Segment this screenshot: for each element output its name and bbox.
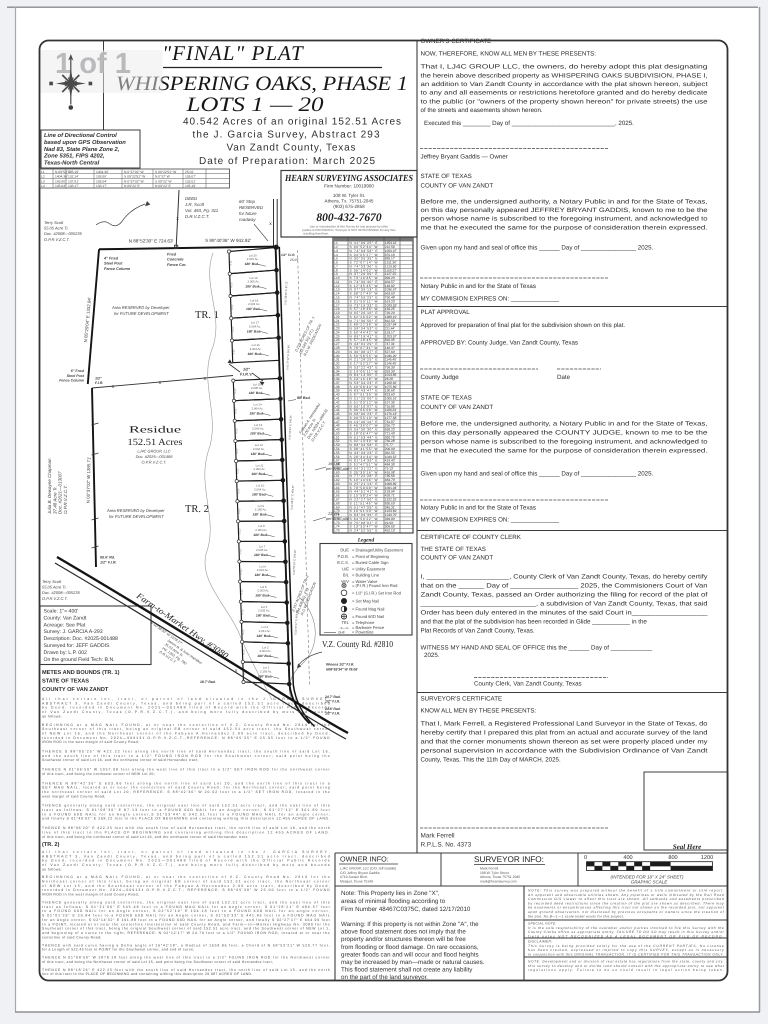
svg-text:Doc. #2021—013007: Doc. #2021—013007 [58, 471, 63, 514]
svg-text:for FUTURE DEVELOPMENT: for FUTURE DEVELOPMENT [114, 311, 169, 316]
svg-text:55.05 Acre Tr.: 55.05 Acre Tr. [44, 226, 69, 231]
svg-text:132.01': 132.01' [185, 179, 196, 183]
svg-text:1/2": 1/2" [95, 377, 102, 381]
svg-text:(TR. 2): (TR. 2) [42, 841, 60, 848]
svg-text:2.004 Ac.: 2.004 Ac. [257, 568, 269, 572]
svg-text:180' Bsd.: 180' Bsd. [257, 634, 271, 638]
svg-text:180' Bsd.: 180' Bsd. [247, 329, 261, 333]
svg-text:N 01°: N 01° [230, 282, 233, 288]
svg-text:1200: 1200 [701, 855, 713, 861]
svg-text:1 of 1: 1 of 1 [55, 48, 131, 80]
svg-text:an addition to Van Zandt Count: an addition to Van Zandt County in accor… [421, 81, 708, 88]
svg-text:Fence Column: Fence Column [104, 267, 131, 271]
svg-text:Concrete: Concrete [167, 258, 183, 262]
svg-text:Before me, the undersigned aut: Before me, the undersigned authority, a … [421, 199, 708, 206]
svg-text:COUNTY OF VAN ZANDT: COUNTY OF VAN ZANDT [421, 555, 494, 562]
svg-text:TEL: TEL [341, 620, 349, 625]
svg-text:for future: for future [239, 211, 257, 216]
svg-text:452.13': 452.13' [385, 529, 396, 533]
svg-text:of this tract, and being the n: of this tract, and being the northeast c… [42, 835, 249, 839]
svg-text:= (F.I.R.) Found Iron Rod: = (F.I.R.) Found Iron Rod [352, 583, 398, 588]
svg-text:TR. 2: TR. 2 [185, 504, 209, 515]
svg-text:as follows:: as follows: [42, 714, 62, 718]
svg-text:183.80': 183.80' [96, 175, 107, 179]
svg-text:Before me, the undersigned aut: Before me, the undersigned authority, a … [421, 421, 708, 428]
svg-text:S 89°22'51" W: S 89°22'51" W [155, 170, 177, 174]
svg-text:me that he executed the same f: me that he executed the same for the pur… [421, 224, 708, 231]
svg-text:SURVEYOR INFO:: SURVEYOR INFO: [474, 855, 544, 864]
svg-text:personal supervision in accord: personal supervision in accordance with … [421, 748, 708, 755]
svg-text:IRON ROD in the west margin of: IRON ROD in the west margin of said Coun… [42, 893, 139, 897]
svg-text:180' Bsd.: 180' Bsd. [250, 432, 264, 436]
svg-text:DUE: DUE [340, 548, 349, 553]
svg-text:N 01°: N 01° [239, 528, 242, 534]
svg-text:2.004 Ac.: 2.004 Ac. [255, 528, 267, 532]
svg-text:STATE OF TEXAS: STATE OF TEXAS [42, 679, 89, 685]
svg-text:= Set Mag Nail: = Set Mag Nail [352, 599, 379, 604]
svg-text:N 00°37'02" W 1385.71': N 00°37'02" W 1385.71' [86, 457, 92, 504]
svg-text:line of this tract to the PLAC: line of this tract to the PLACE OF BEGIN… [42, 972, 253, 976]
svg-text:2.031 Ac.: 2.031 Ac. [247, 257, 259, 261]
svg-text:to the public (or "owners of t: to the public (or "owners of the propert… [421, 98, 709, 105]
svg-text:= Point of Beginning: = Point of Beginning [352, 554, 389, 559]
svg-text:2.159 Ac.: 2.159 Ac. [260, 669, 272, 673]
svg-text:P.O.B.: P.O.B. [337, 554, 349, 559]
svg-text:Mark Ferrell: Mark Ferrell [421, 833, 455, 840]
svg-text:180' Bsd.: 180' Bsd. [245, 285, 259, 289]
svg-text:above flood statement does: above flood statement does not imply tha… [341, 929, 466, 936]
svg-text:N 01°: N 01° [239, 548, 242, 554]
svg-text:2.004 Ac.: 2.004 Ac. [249, 324, 261, 328]
svg-text:1/2" F.I.R.: 1/2" F.I.R. [325, 700, 340, 704]
svg-text:METES AND BOUNDS (TR. 1): METES AND BOUNDS (TR. 1) [42, 669, 120, 676]
svg-text:S 89°22'51" W: S 89°22'51" W [124, 175, 146, 179]
svg-text:180' Bsd.: 180' Bsd. [247, 352, 261, 356]
svg-text:800: 800 [668, 855, 677, 861]
svg-text:180' Bsd.: 180' Bsd. [249, 411, 263, 415]
svg-text:0: 0 [584, 855, 587, 861]
svg-text:That I, Mark Ferrell, a Regist: That I, Mark Ferrell, a Registered Profe… [421, 721, 709, 728]
svg-text:180' Bsd.: 180' Bsd. [253, 533, 267, 537]
svg-text:2.003 Ac.: 2.003 Ac. [250, 347, 262, 351]
svg-text:J.R. Scott: J.R. Scott [184, 202, 205, 207]
svg-text:N 0°37'02" W: N 0°37'02" W [124, 170, 144, 174]
svg-text:of this tract, and being the n: of this tract, and being the northwest c… [42, 772, 155, 776]
svg-text:that on the ______ Day of ____: that on the ______ Day of ______________… [421, 583, 709, 590]
svg-text:180' Bsd.: 180' Bsd. [249, 391, 263, 395]
svg-text:105.19': 105.19' [185, 184, 196, 188]
svg-text:Doc. #2008—005235: Doc. #2008—005235 [44, 231, 83, 236]
svg-text:CERTIFICATE OF COUNTY CLERK: CERTIFICATE OF COUNTY CLERK [421, 534, 522, 541]
svg-text:2.004 Ac.: 2.004 Ac. [253, 447, 265, 451]
svg-text:Approved for preparation of fi: Approved for preparation of final plat f… [421, 322, 626, 329]
svg-text:2.004 Ac.: 2.004 Ac. [254, 487, 266, 491]
svg-text:180' Bsd.: 180' Bsd. [254, 553, 268, 557]
svg-text:N 01°: N 01° [234, 388, 237, 394]
svg-text:180' Bsd.: 180' Bsd. [246, 307, 260, 311]
svg-text:4" Fnsd: 4" Fnsd [103, 257, 119, 261]
svg-text:R.P.L.S. No. 4373: R.P.L.S. No. 4373 [421, 842, 472, 849]
svg-text:N 01°: N 01° [230, 259, 233, 265]
svg-text:and finally S 01°49'02" E 268.: and finally S 01°49'02" E 268.22 feet to… [42, 817, 330, 821]
svg-text:Note: This Property lies i: Note: This Property lies in Zone "X", [341, 890, 440, 897]
svg-text:Mesquit, Texas 75149: Mesquit, Texas 75149 [340, 879, 373, 883]
svg-text:N 01°: N 01° [242, 629, 245, 635]
svg-text:greater floods can and wil: greater floods can and will occur and fl… [341, 951, 479, 958]
svg-text:of Van Zandt County, Texas (O.: of Van Zandt County, Texas (O.P.R.V.Z.C.… [42, 710, 330, 714]
svg-text:and that the corner monuments: and that the corner monuments shown ther… [421, 739, 709, 746]
svg-text:N 0°37'02" W: N 0°37'02" W [124, 179, 144, 183]
svg-text:me that he executed the same f: me that he executed the same for the pur… [421, 448, 708, 455]
svg-text:Winona 1/2" F.I.R.: Winona 1/2" F.I.R. [326, 663, 354, 667]
svg-text:D.R.V.Z.C.T.: D.R.V.Z.C.T. [185, 214, 209, 219]
svg-text:Texas-North Central: Texas-North Central [44, 160, 100, 167]
svg-text:180' Bsd.: 180' Bsd. [252, 492, 266, 496]
svg-text:IRON ROD in the west margin of: IRON ROD in the west margin of said Coun… [42, 740, 139, 744]
svg-text:Drawn by: L.P. 002: Drawn by: L.P. 002 [44, 650, 88, 656]
svg-text:N 89°22' E: N 89°22' E [155, 184, 171, 188]
svg-text:Notary Public in and for the S: Notary Public in and for the State of Te… [421, 283, 536, 290]
svg-text:2.004 Ac.: 2.004 Ac. [259, 649, 271, 653]
svg-text:N 01°: N 01° [237, 488, 240, 494]
svg-text:2.006 Ac.: 2.006 Ac. [252, 427, 264, 431]
svg-text:= Utility Easement: = Utility Easement [352, 566, 386, 571]
svg-text:of the streets and easements s: of the streets and easements shown hereo… [421, 107, 543, 114]
svg-text:COUNTY OF VAN ZANDT: COUNTY OF VAN ZANDT [421, 183, 494, 190]
svg-text:= Found Mag Nail: = Found Mag Nail [352, 607, 385, 612]
svg-text:S 88°40'36" W 942.92': S 88°40'36" W 942.92' [205, 238, 251, 243]
svg-text:APPROVED BY: County Judge, Va: APPROVED BY: County Judge, Van Zandt Cou… [421, 340, 579, 347]
svg-text:105.04': 105.04' [55, 184, 66, 188]
svg-text:Date: Date [557, 374, 571, 381]
svg-text:That I, LJ4C GROUP LLC, the ow: That I, LJ4C GROUP LLC, the owners, do h… [421, 64, 709, 71]
svg-text:2.041 Ac.: 2.041 Ac. [259, 629, 271, 633]
svg-text:the plat. No B—1—1 scale tic: the plat. No B—1—1 scale ticket exists f… [528, 914, 624, 918]
svg-text:west margin of said County Roa: west margin of said County Road; [42, 794, 106, 798]
svg-text:NOW, THEREFORE, KNOW ALL MEN B: NOW, THEREFORE, KNOW ALL MEN BY THESE PR… [421, 51, 597, 58]
svg-text:1404.36': 1404.36' [55, 175, 68, 179]
svg-text:Steel Post: Steel Post [67, 374, 85, 378]
svg-text:N 0°37' W: N 0°37' W [155, 175, 171, 179]
svg-text:2.158 Ac.: 2.158 Ac. [255, 508, 267, 512]
svg-text:40.542 Acres of an original 15: 40.542 Acres of an original 152.51 Acres [183, 117, 401, 128]
svg-text:on the part of the land: on the part of the land surveyor. [341, 974, 428, 981]
svg-text:180' Bsd.: 180' Bsd. [251, 472, 265, 476]
svg-text:180' Bsd.: 180' Bsd. [257, 654, 271, 658]
svg-text:65.6' Rd.: 65.6' Rd. [100, 556, 115, 560]
svg-text:Fence Cor.: Fence Cor. [167, 263, 186, 267]
svg-text:F.I.R.'s: F.I.R.'s [240, 373, 252, 377]
svg-text:County Judge: County Judge [421, 374, 460, 381]
svg-text:183.80': 183.80' [55, 179, 66, 183]
svg-text:Order has been duly entered in: Order has been duly entered in the minut… [421, 610, 709, 617]
svg-text:Residue: Residue [129, 426, 181, 436]
svg-text:Given upon my hand and seal of: Given upon my hand and seal of office th… [421, 471, 654, 478]
svg-text:105.07': 105.07' [185, 175, 196, 179]
svg-text:24.7' Rad.: 24.7' Rad. [324, 695, 341, 699]
svg-text:108 W. Tyler St.: 108 W. Tyler St. [333, 193, 365, 198]
svg-text:O.P.R.V.Z.C.T.: O.P.R.V.Z.C.T. [42, 596, 68, 601]
svg-text:N 24°52'55" E: N 24°52'55" E [350, 529, 378, 533]
svg-text:regulations apply. Failure to: regulations apply. Failure to do so coul… [528, 968, 724, 972]
svg-text:180' Bsd.: 180' Bsd. [255, 593, 269, 597]
svg-text:60' Strip: 60' Strip [239, 199, 256, 204]
svg-text:PLAT APPROVAL: PLAT APPROVAL [421, 309, 471, 316]
svg-text:STATE OF TEXAS: STATE OF TEXAS [421, 395, 472, 402]
svg-text:MY COMMISION EXPIRES ON: _____: MY COMMISION EXPIRES ON: ______________ [421, 517, 560, 524]
svg-text:O.P.R.V.Z.C.T.: O.P.R.V.Z.C.T. [44, 237, 70, 242]
svg-text:Julia B. Dewayne Chapman: Julia B. Dewayne Chapman [47, 458, 52, 515]
svg-text:N 01°: N 01° [232, 326, 235, 332]
svg-text:Legend: Legend [357, 538, 375, 544]
svg-text:HEARN SURVEYING ASSOCIATES: HEARN SURVEYING ASSOCIATES [284, 174, 413, 184]
svg-text:Surveyed for: JEFF GADDIS: Surveyed for: JEFF GADDIS [44, 643, 111, 649]
svg-text:137.81': 137.81' [68, 179, 79, 183]
svg-text:= Building Line: = Building Line [352, 573, 380, 578]
svg-text:Notary Public in and for the S: Notary Public in and for the State of Te… [421, 505, 536, 512]
svg-text:OHP: OHP [338, 631, 345, 635]
svg-text:Vol. 493, Pg. 311: Vol. 493, Pg. 311 [185, 208, 219, 213]
svg-text:as follows:: as follows: [42, 867, 62, 871]
svg-text:Athens, Tx. 75751-2045: Athens, Tx. 75751-2045 [325, 199, 374, 204]
svg-text:= Found 60D Nail: = Found 60D Nail [352, 614, 384, 619]
svg-text:55.05 Acre Tr.: 55.05 Acre Tr. [42, 585, 67, 590]
svg-text:(903) 675-2858: (903) 675-2858 [333, 204, 365, 209]
svg-text:N 01°: N 01° [240, 568, 243, 574]
svg-text:may be increased by man—ma: may be increased by man—made or natural … [341, 959, 485, 966]
svg-text:Fence Column: Fence Column [59, 379, 85, 383]
svg-text:25.01': 25.01' [185, 170, 194, 174]
svg-text:THE STATE OF TEXAS: THE STATE OF TEXAS [421, 546, 486, 553]
svg-text:hereby certify that I prepared: hereby certify that I prepared this plat… [421, 730, 709, 737]
svg-text:N 01°: N 01° [235, 428, 238, 434]
svg-text:This flood statement shall: This flood statement shall not create an… [341, 967, 473, 974]
svg-text:180' Bsd.: 180' Bsd. [251, 452, 265, 456]
svg-text:-x—x-: -x—x- [339, 626, 349, 630]
svg-text:132.14': 132.14' [68, 175, 79, 179]
svg-text:"FINAL" PLAT: "FINAL" PLAT [162, 41, 304, 65]
svg-text:for a Length of 522.45 feet to: for a Length of 522.45 feet to POINT for… [42, 948, 195, 952]
svg-text:Southwest corner of said Lot 1: Southwest corner of said Lot 16, and the… [42, 758, 199, 762]
svg-text:= Powerline: = Powerline [352, 630, 374, 635]
svg-text:2.003 Ac.: 2.003 Ac. [257, 588, 269, 592]
svg-text:DEED: DEED [185, 196, 198, 201]
svg-text:B.C.S.: B.C.S. [337, 560, 349, 565]
svg-text:roadway: roadway [239, 217, 256, 222]
svg-text:KNOW ALL MEN BY THESE PRESENTS: KNOW ALL MEN BY THESE PRESENTS: [421, 708, 537, 715]
svg-text:and that the plat of the subdi: and that the plat of the subdivision has… [421, 619, 648, 626]
svg-text:Firm Number 48467C0375C, da: Firm Number 48467C0375C, dated 12/17/201… [341, 906, 471, 913]
svg-text:105.19': 105.19' [68, 170, 79, 174]
svg-text:1/2" F.I.R.: 1/2" F.I.R. [325, 712, 340, 716]
svg-text:F.I.R.: F.I.R. [95, 381, 103, 385]
svg-text:180' Bsd.: 180' Bsd. [245, 262, 259, 266]
svg-text:on this day personally appeare: on this day personally appeared the COUN… [421, 430, 709, 437]
svg-text:COUNTY OF VAN ZANDT: COUNTY OF VAN ZANDT [42, 687, 109, 693]
svg-text:N 01°: N 01° [237, 468, 240, 474]
svg-text:Fnsd: Fnsd [167, 253, 177, 257]
svg-text:37.48 Acre Tr.: 37.48 Acre Tr. [52, 486, 57, 514]
svg-text:= Buried Cable Sign: = Buried Cable Sign [352, 560, 389, 565]
svg-text:L75: L75 [334, 529, 340, 533]
svg-text:Date of Preparation: March 202: Date of Preparation: March 2025 [199, 156, 375, 167]
svg-text:400: 400 [623, 855, 632, 861]
svg-text:Acreage: See Plat: Acreage: See Plat [44, 622, 86, 628]
svg-text:WITNESS MY HAND AND SEAL: WITNESS MY HAND AND SEAL OF OFFICE this … [421, 645, 653, 652]
svg-text:Van Zandt County, Texas: Van Zandt County, Texas [227, 143, 356, 154]
svg-text:1/2" F.I.R.: 1/2" F.I.R. [281, 253, 295, 257]
svg-text:24.8' Rad.: 24.8' Rad. [324, 707, 341, 711]
svg-text:STATE OF TEXAS: STATE OF TEXAS [421, 173, 472, 180]
svg-text:I, ____________________, Count: I, ____________________, County Clerk of… [421, 574, 709, 581]
svg-text:V.Z. County Rd. #2810: V.Z. County Rd. #2810 [322, 639, 393, 649]
svg-text:x: x [112, 384, 115, 390]
svg-text:= 1/2" (S.I.R.) Set Iron Rod: = 1/2" (S.I.R.) Set Iron Rod [352, 590, 402, 595]
svg-text:Doc. #2025—001488: Doc. #2025—001488 [136, 454, 174, 459]
svg-text:property and/or structures: property and/or structures thereon will … [341, 936, 466, 943]
svg-text:County Clerk, Van Zandt County: County Clerk, Van Zandt County, Texas [474, 681, 582, 688]
svg-text:88' Bsd.: 88' Bsd. [297, 396, 311, 400]
svg-text:OWNER'S CERTIFICATE: OWNER'S CERTIFICATE [421, 38, 492, 45]
svg-text:LOTS 1 — 20: LOTS 1 — 20 [185, 94, 323, 116]
svg-text:Zone 5351, FIPS 4202,: Zone 5351, FIPS 4202, [43, 153, 105, 160]
svg-text:N 88°52'30" E 724.63': N 88°52'30" E 724.63' [129, 239, 174, 244]
svg-text:138.17': 138.17' [96, 184, 107, 188]
svg-text:2.004 Ac.: 2.004 Ac. [248, 302, 260, 306]
svg-text:Executed this ________ Day of: Executed this ________ Day of __________… [424, 120, 634, 127]
svg-text:800-432-7670: 800-432-7670 [316, 212, 381, 224]
svg-text:person whose name is subscribe: person whose name is subscribed to the f… [421, 216, 709, 223]
svg-text:N 01°: N 01° [241, 588, 244, 594]
svg-text:SURVEYOR'S CERTIFICATE: SURVEYOR'S CERTIFICATE [421, 696, 503, 703]
svg-text:N 01°: N 01° [231, 304, 234, 310]
svg-text:on this day personally appeare: on this day personally appeared JEFFREY … [421, 207, 709, 214]
svg-text:Area RESERVED by Developer: Area RESERVED by Developer [111, 305, 170, 310]
svg-text:180' Bsd.: 180' Bsd. [253, 513, 267, 517]
svg-text:Warning: If this property: Warning: If this property is not within … [341, 921, 479, 928]
svg-text:Plat Records of Van Zandt Coun: Plat Records of Van Zandt County, Texas. [421, 628, 535, 635]
svg-text:MY COMMISION EXPIRES ON: _____: MY COMMISION EXPIRES ON: ______________ [421, 296, 560, 303]
svg-text:field notes NOT RECOGNIZED AS: field notes NOT RECOGNIZED AS A LEGAL DO… [528, 934, 724, 938]
svg-text:138.17': 138.17' [68, 184, 79, 188]
svg-text:Doc. #2008—005235: Doc. #2008—005235 [42, 590, 81, 595]
svg-text:152.51 Acres: 152.51 Acres [128, 438, 183, 448]
svg-text:in conjunction with this ORIGI: in conjunction with this ORIGINAL TRANSA… [528, 952, 724, 956]
svg-text:COUNTY OF VAN ZANDT: COUNTY OF VAN ZANDT [421, 404, 494, 411]
svg-text:1/2": 1/2" [243, 368, 250, 372]
svg-text:Steel Post: Steel Post [104, 262, 123, 266]
svg-text:W/V: W/V [341, 579, 349, 584]
svg-text:2.005 Ac.: 2.005 Ac. [258, 609, 270, 613]
svg-text:mark@hearnsurvey.com: mark@hearnsurvey.com [480, 879, 517, 883]
svg-text:B/L: B/L [343, 573, 350, 578]
svg-text:Given upon my hand and seal of: Given upon my hand and seal of office th… [421, 245, 654, 252]
svg-text:Terry Scott: Terry Scott [44, 220, 64, 225]
svg-text:Seal Here: Seal Here [673, 843, 702, 851]
svg-text:N 01°: N 01° [243, 649, 246, 655]
svg-text:180' Bsd.: 180' Bsd. [256, 614, 270, 618]
svg-text:2.005 Ac.: 2.005 Ac. [247, 280, 259, 284]
svg-text:L1: L1 [41, 170, 45, 174]
svg-text:OWNER INFO:: OWNER INFO: [340, 855, 389, 864]
svg-text:S 89°22' W: S 89°22' W [155, 179, 172, 183]
svg-text:GRAPHIC SCALE: GRAPHIC SCALE [631, 880, 669, 885]
svg-text:Line of Directional Control: Line of Directional Control [44, 132, 117, 139]
svg-text:County, Texas. This the 11th D: County, Texas. This the 11th Day of MARC… [421, 757, 561, 764]
svg-text:Area RESERVED by Developer: Area RESERVED by Developer [106, 508, 165, 513]
svg-text:N08°55'34" W 78.06': N08°55'34" W 78.06' [326, 668, 358, 672]
svg-text:= Drainage/Utility Easement: = Drainage/Utility Easement [352, 548, 404, 553]
svg-text:____________________________,: ____________________________, a subdivis… [419, 601, 708, 608]
svg-text:per THIS plat: per THIS plat [325, 516, 350, 521]
svg-text:County: Van Zandt: County: Van Zandt [44, 615, 87, 621]
svg-text:1/2" F.I.R.: 1/2" F.I.R. [100, 561, 117, 565]
svg-text:105.04': 105.04' [96, 179, 107, 183]
svg-text:180' Bsd.: 180' Bsd. [258, 674, 272, 678]
svg-text:2.004 Ac.: 2.004 Ac. [252, 406, 264, 410]
svg-text:L3: L3 [41, 179, 45, 183]
svg-text:for FUTURE DEVELOPMENT: for FUTURE DEVELOPMENT [109, 514, 164, 519]
svg-text:person whose name is subscribe: person whose name is subscribed to the f… [421, 439, 709, 446]
svg-text:areas of minimal flooding: areas of minimal flooding according to [341, 898, 446, 905]
svg-text:L2: L2 [41, 175, 45, 179]
svg-text:x: x [204, 376, 207, 382]
svg-text:N 01°: N 01° [236, 448, 239, 454]
svg-text:U/E: U/E [342, 566, 349, 571]
svg-text:1404.36': 1404.36' [96, 170, 109, 174]
svg-text:from flooding or flood dam: from flooding or flood damage. On rare o… [341, 944, 479, 951]
svg-text:6" Fnsd: 6" Fnsd [71, 369, 85, 373]
svg-text:180' Bsd.: 180' Bsd. [255, 573, 269, 577]
svg-text:N 01°: N 01° [233, 348, 236, 354]
svg-text:18.7' Rad.: 18.7' Rad. [200, 680, 216, 684]
svg-text:Survey: J. GARCIA A-293: Survey: J. GARCIA A-293 [44, 629, 103, 635]
svg-text:N 89°22' E: N 89°22' E [124, 184, 140, 188]
svg-text:2.003 Ac.: 2.003 Ac. [253, 467, 265, 471]
svg-text:of this tract, and being the N: of this tract, and being the Northwest c… [42, 960, 273, 964]
svg-text:O.P.R.V.Z.C.T.: O.P.R.V.Z.C.T. [141, 460, 166, 465]
svg-text:Zandt County, Texas, passed an: Zandt County, Texas, passed an Order aut… [421, 592, 708, 599]
svg-text:the herein above described pro: the herein above described property as W… [421, 72, 708, 79]
svg-text:Firm Number: 10019900: Firm Number: 10019900 [324, 184, 374, 189]
svg-text:LJ4C GROUP, LLC: LJ4C GROUP, LLC [137, 449, 170, 454]
svg-text:25.05': 25.05' [289, 258, 299, 262]
svg-text:centerline of said County Road: centerline of said County Road; [42, 935, 102, 939]
svg-text:to any and all easements or re: to any and all easements or restrictions… [421, 90, 709, 97]
svg-text:of Van Zandt County, Texas (O.: of Van Zandt County, Texas (O.P.R.V.Z.C.… [42, 863, 330, 867]
svg-text:N 01°: N 01° [241, 609, 244, 615]
svg-text:O.P.R.V.Z.C.T.: O.P.R.V.Z.C.T. [63, 485, 68, 514]
svg-text:Terry Scott: Terry Scott [42, 579, 62, 584]
svg-text:Jeffrey Bryant Gaddis — Owne: Jeffrey Bryant Gaddis — Owner [421, 154, 508, 161]
svg-text:based upon GPS Observation: based upon GPS Observation [44, 139, 126, 146]
svg-text:2.005 Ac.: 2.005 Ac. [251, 386, 263, 390]
svg-text:Scale: 1"= 400': Scale: 1"= 400' [44, 609, 79, 615]
svg-text:2.005 Ac.: 2.005 Ac. [256, 548, 268, 552]
svg-text:L4: L4 [41, 184, 45, 188]
svg-text:x: x [159, 380, 162, 386]
svg-text:resulting therefrom.: resulting therefrom. [303, 232, 329, 236]
svg-text:On the ground Field Tech:: On the ground Field Tech: B.N. [44, 657, 115, 663]
svg-text:RESERVED: RESERVED [239, 205, 264, 210]
svg-text:2025.: 2025. [424, 652, 440, 659]
svg-text:Description: Doc. #2025-0014: Description: Doc. #2025-001488 [44, 636, 119, 642]
svg-text:N 01°: N 01° [235, 408, 238, 414]
svg-text:per THIS plat: per THIS plat [325, 466, 350, 471]
svg-text:Nad 83, State Plane Zone 2,: Nad 83, State Plane Zone 2, [44, 146, 120, 153]
svg-text:N 01°: N 01° [238, 508, 241, 514]
